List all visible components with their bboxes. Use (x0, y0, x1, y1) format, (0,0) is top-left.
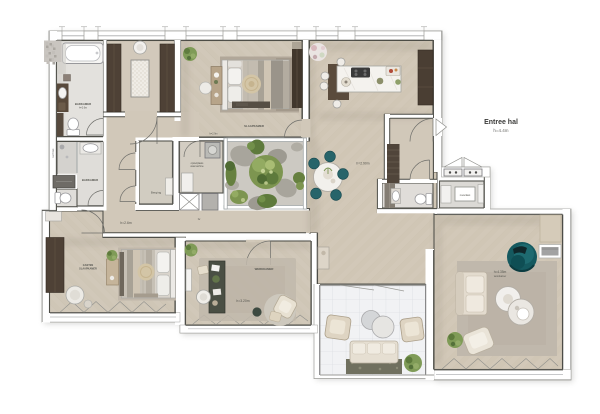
svg-text:h=2.90m: h=2.90m (356, 162, 369, 166)
svg-text:SLAAPKAMER: SLAAPKAMER (244, 124, 264, 128)
svg-text:fw: fw (198, 218, 201, 221)
svg-text:meterkast: meterkast (460, 194, 471, 197)
svg-text:Berging: Berging (151, 191, 162, 195)
svg-text:BADKAMER: BADKAMER (82, 178, 98, 182)
svg-text:woonkamer: woonkamer (494, 275, 507, 278)
svg-text:SLAAPKAMER: SLAAPKAMER (79, 268, 97, 271)
svg-text:h=3.20m: h=3.20m (236, 299, 249, 303)
svg-text:Entree hal: Entree hal (484, 119, 518, 126)
svg-text:h=2.9m: h=2.9m (209, 133, 217, 136)
svg-text:WERKKAMER: WERKKAMER (255, 267, 274, 271)
svg-text:wasmachine: wasmachine (190, 165, 204, 168)
svg-text:h=2.6m: h=2.6m (79, 107, 87, 110)
svg-text:h=4.35m: h=4.35m (494, 270, 507, 274)
svg-text:h=4.4m: h=4.4m (493, 128, 508, 133)
svg-text:BADKAMER: BADKAMER (75, 102, 91, 106)
svg-text:h=2.6m: h=2.6m (120, 221, 132, 225)
svg-text:techniek: techniek (52, 148, 55, 158)
